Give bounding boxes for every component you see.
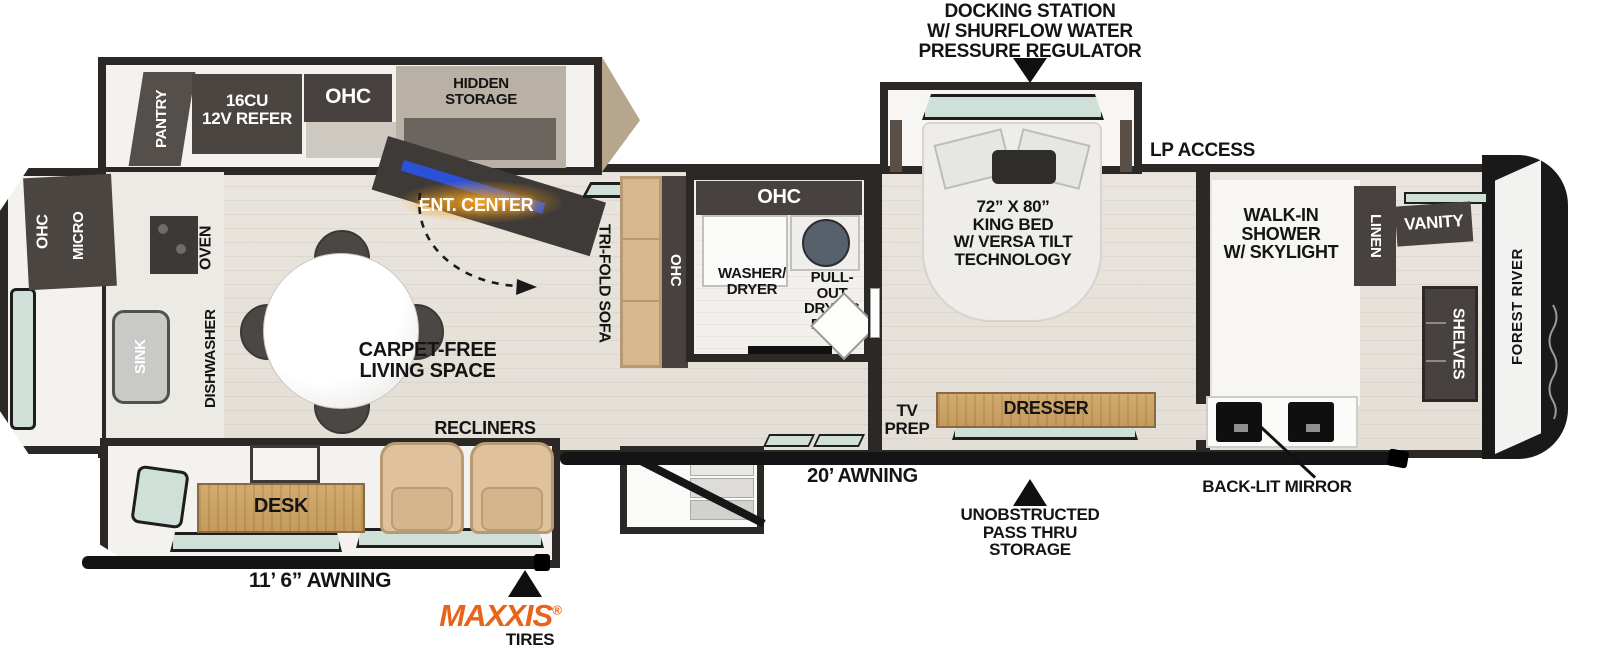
burner-icon: [158, 224, 168, 234]
burner-icon: [176, 244, 186, 254]
up-arrow-icon: [1013, 479, 1047, 506]
up-arrow-icon: [508, 570, 542, 597]
washer-dryer-label: WASHER/ DRYER: [706, 266, 798, 297]
laundry-door: [748, 346, 832, 354]
awning-bar-cap: [534, 554, 550, 571]
tires-label: TIRES: [470, 631, 590, 649]
sofa-seam: [622, 238, 660, 240]
awning-11-label: 11’ 6” AWNING: [230, 570, 410, 592]
recliner-chair: [380, 442, 464, 534]
kitchen-side-window: [10, 288, 36, 430]
dining-table: [263, 253, 419, 409]
door-side-window: [813, 434, 865, 447]
micro-label: MICRO: [62, 186, 96, 286]
faucet-icon: [1306, 424, 1320, 432]
range-oven: [150, 216, 198, 274]
docking-station-label: DOCKING STATION W/ SHURFLOW WATER PRESSU…: [855, 2, 1205, 61]
sink-label: SINK: [120, 318, 162, 396]
hidden-storage-label: HIDDEN STORAGE: [398, 76, 564, 107]
door-side-window: [763, 434, 815, 447]
tv-prep-label: TV PREP: [878, 402, 936, 437]
dresser-label: DRESSER: [936, 399, 1156, 418]
linen-label: LINEN: [1354, 190, 1396, 282]
bed-side-window: [890, 120, 902, 172]
registered-mark: ®: [552, 603, 561, 618]
vanity-sink: [1288, 402, 1334, 442]
shelves-label: SHELVES: [1440, 292, 1474, 396]
tri-fold-sofa: [620, 176, 662, 368]
sofa-seam: [622, 300, 660, 302]
faucet-icon: [1234, 424, 1248, 432]
kitchen-left-ohc-label: OHC: [28, 186, 60, 278]
walk-in-shower-label: WALK-IN SHOWER W/ SKYLIGHT: [1205, 206, 1357, 262]
brand-label: FOREST RIVER: [1499, 178, 1537, 436]
laundry-sink: [802, 219, 850, 267]
tri-fold-sofa-label: TRI-FOLD SOFA: [588, 198, 618, 368]
kitchen-ohc-label: OHC: [304, 86, 392, 108]
slideout-window: [170, 532, 342, 552]
awning-20-bar: [560, 452, 1406, 465]
bed-side-window: [1120, 120, 1132, 172]
floorplan-canvas: DOCKING STATION W/ SHURFLOW WATER PRESSU…: [0, 0, 1600, 655]
laundry-ohc-label: OHC: [696, 187, 862, 208]
awning-11-bar: [82, 556, 546, 569]
desk-label: DESK: [197, 496, 365, 517]
refrigerator-label: 16CU 12V REFER: [192, 92, 302, 127]
dishwasher-label: DISHWASHER: [200, 292, 222, 426]
backlit-mirror-label: BACK-LIT MIRROR: [1192, 478, 1362, 496]
king-bed-label: 72” X 80” KING BED W/ VERSA TILT TECHNOL…: [928, 198, 1098, 269]
recliners-label: RECLINERS: [420, 419, 550, 438]
accent-pillow: [992, 150, 1056, 184]
bedroom-door: [870, 288, 880, 338]
slideout-depth-shade: [602, 57, 640, 172]
sofa-ohc-label: OHC: [662, 220, 688, 320]
maxxis-logo: MAXXIS®: [420, 600, 580, 632]
pass-thru-label: UNOBSTRUCTED PASS THRU STORAGE: [940, 506, 1120, 559]
pantry-label: PANTRY: [138, 74, 186, 164]
carpet-free-label: CARPET-FREE LIVING SPACE: [320, 340, 535, 382]
oven-label: OVEN: [196, 212, 218, 284]
down-arrow-icon: [1013, 58, 1047, 83]
door-swing-arrow-icon: [405, 185, 545, 305]
bed-slideout-window: [922, 94, 1104, 120]
brand-signature-icon: [1543, 300, 1563, 430]
lp-access-label: LP ACCESS: [1150, 141, 1280, 161]
recliner-chair: [470, 442, 554, 534]
awning-bar-cap: [1387, 448, 1410, 468]
slideout-side-window: [130, 465, 190, 530]
awning-20-label: 20’ AWNING: [790, 466, 935, 487]
end-table: [250, 445, 320, 483]
vanity-sink: [1216, 402, 1262, 442]
